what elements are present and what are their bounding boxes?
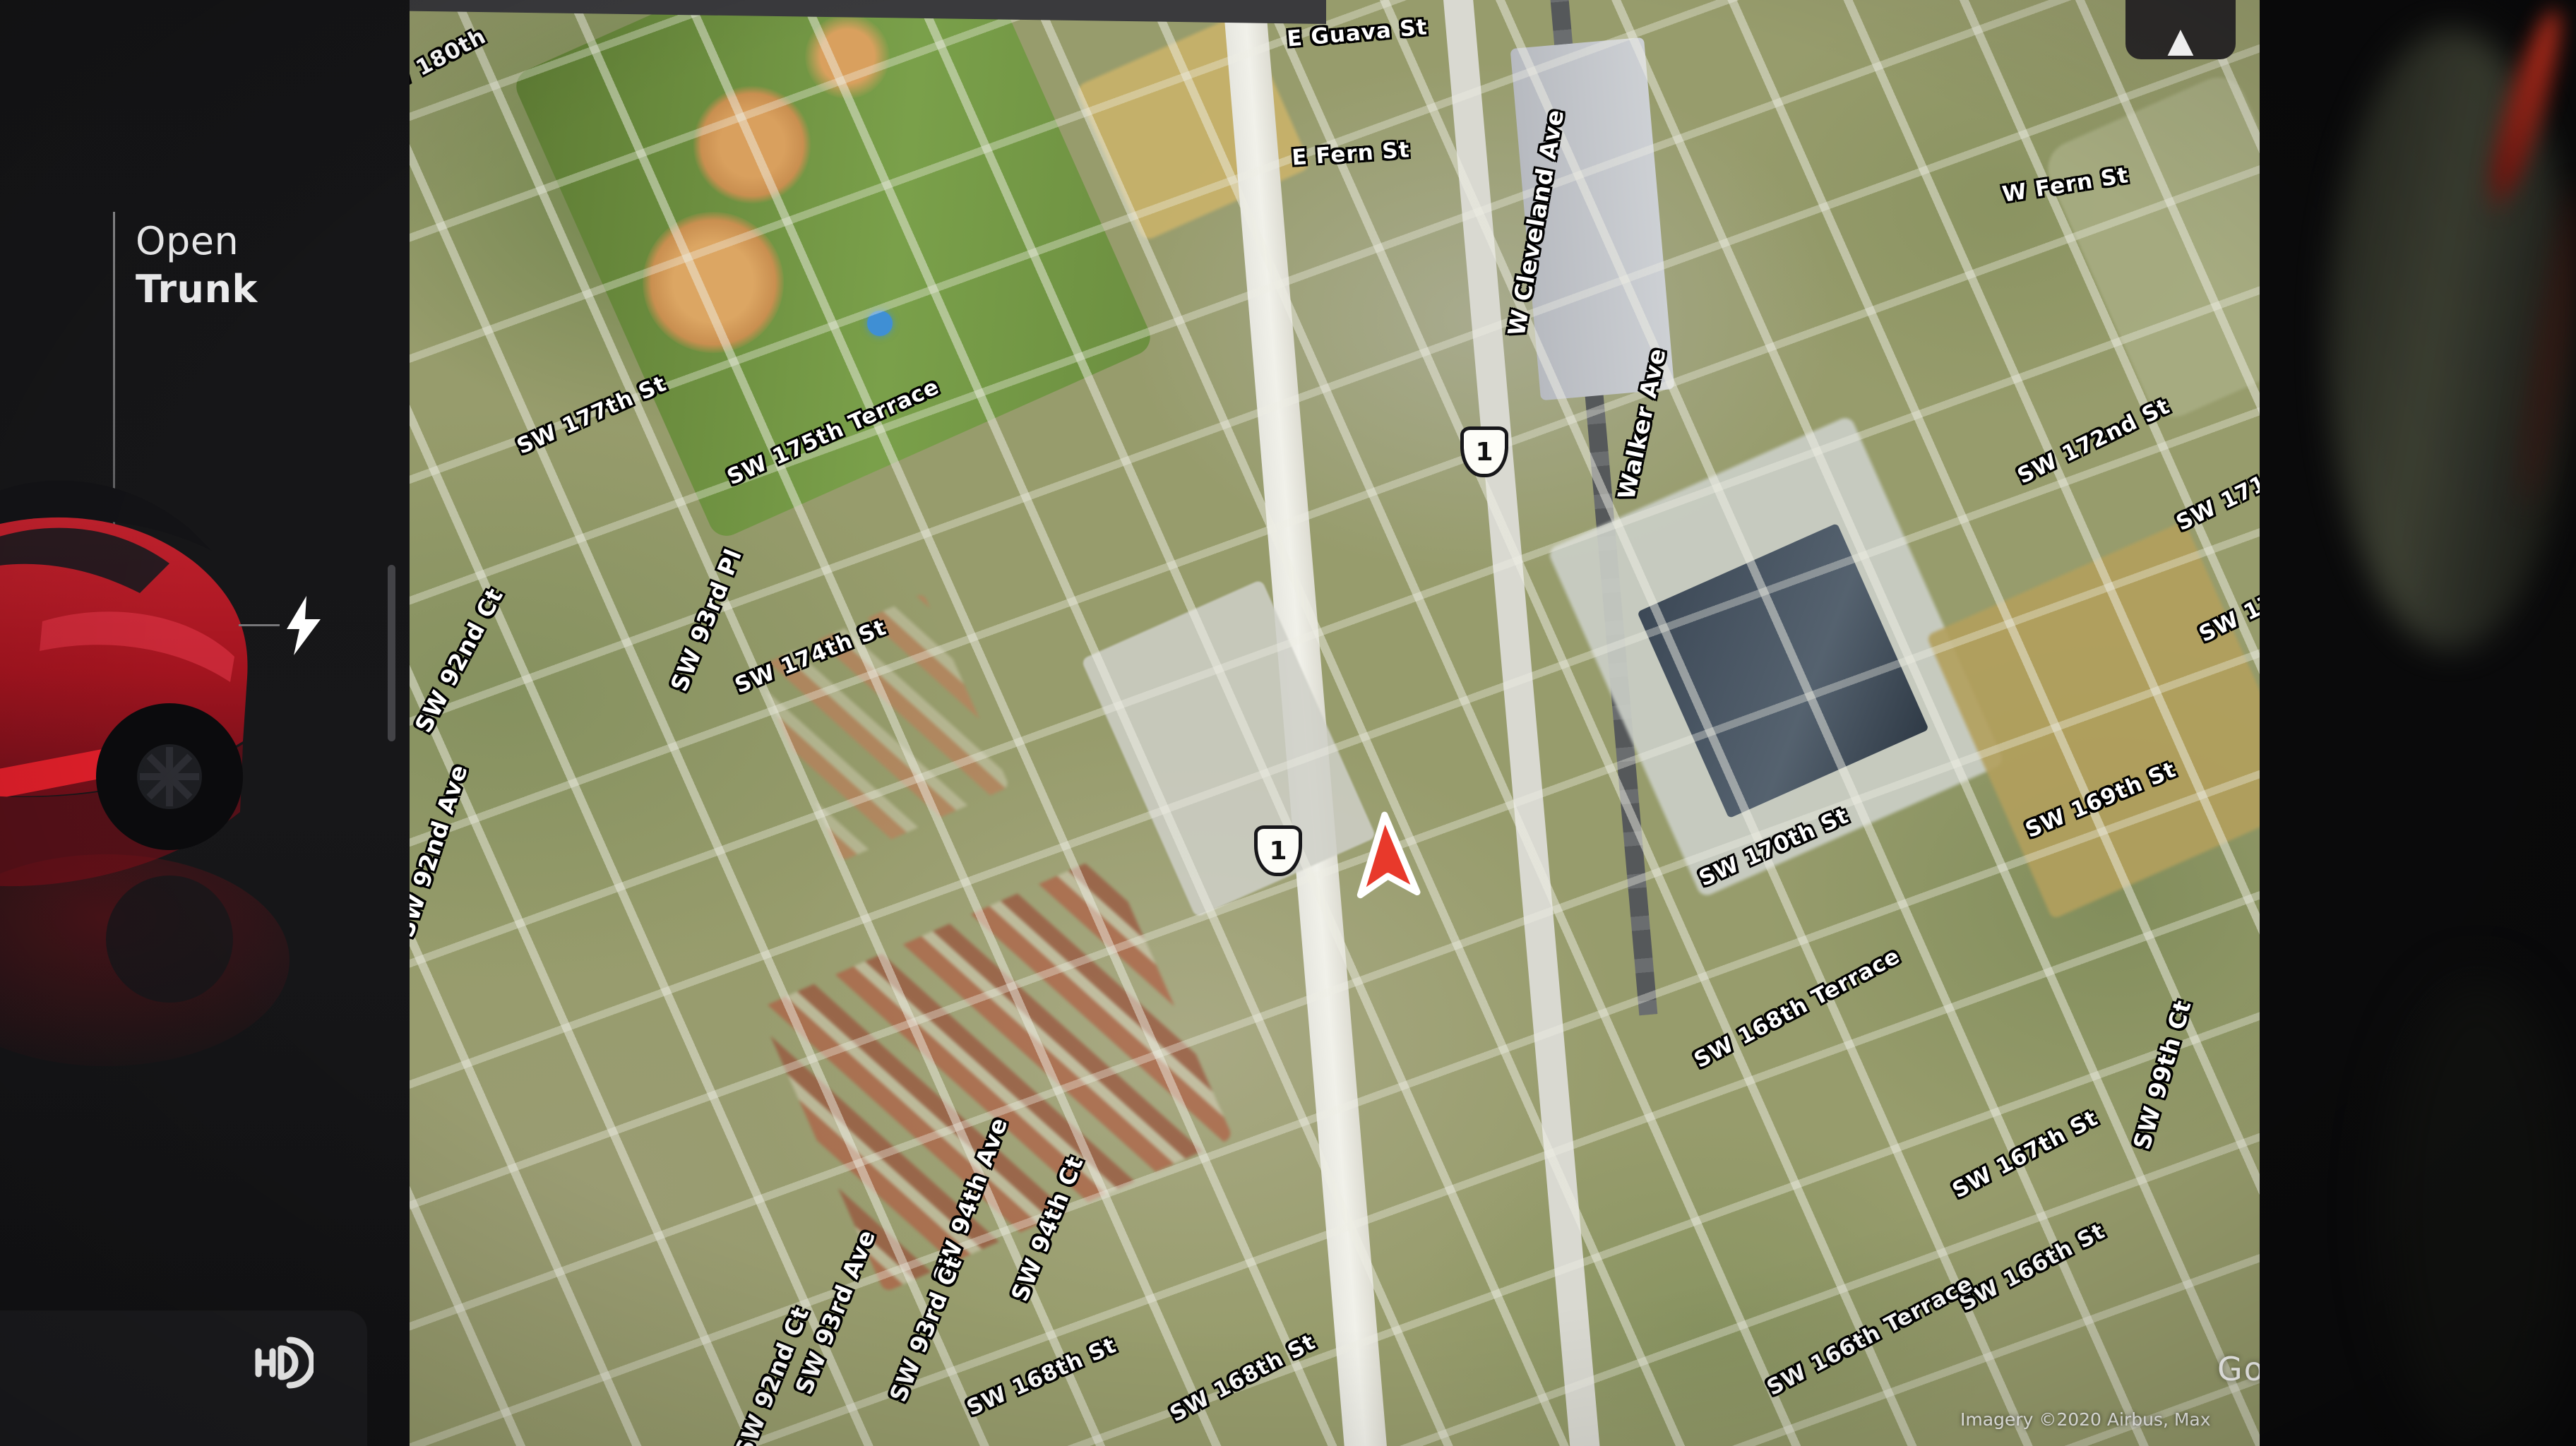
street-label: W Fern St [2000,162,2130,208]
open-trunk-label-trunk: Trunk [136,265,258,313]
street-label: SW 170th [2195,570,2260,647]
street-label: SW 92nd Ave [410,760,473,940]
street-label: W Cleveland Ave [1503,107,1570,338]
street-label: SW 175th Terrace [723,374,943,491]
street-label: W 180th [410,23,490,97]
street-label: SW 166th St [1955,1219,2109,1317]
vehicle-controls-sidebar: Open Trunk [0,0,410,1446]
satellite-map[interactable]: W 180thE Guava StE Fern StW Fern StSW 17… [410,0,2260,1446]
screen-bezel-right [2260,0,2576,1446]
north-arrow-icon: ▲ [2168,21,2194,59]
street-label: SW 94th Ct [1006,1152,1089,1305]
bezel-shadow [2380,974,2576,1446]
vehicle-location-arrow [1352,809,1423,907]
street-label: SW 168th St [1166,1330,1320,1428]
vehicle-rendering [0,445,290,1080]
street-label: Walker Ave [1612,345,1671,502]
charge-port-callout-line [239,624,280,626]
street-label: SW 168th St [963,1332,1121,1421]
street-label: SW 92nd Ct [410,583,508,737]
charge-bolt-icon [284,596,323,658]
sidebar-scrollbar[interactable] [388,565,395,741]
street-label: SW 172nd St [2013,393,2173,489]
tesla-center-display: W 180thE Guava StE Fern StW Fern StSW 17… [0,0,2576,1446]
google-watermark: Google [2217,1350,2260,1388]
street-label: SW 170th St [1695,803,1853,892]
street-label: SW 171st [2172,460,2260,536]
street-label: SW 99th Ct [2128,997,2197,1153]
street-label: SW 174th St [732,615,890,699]
street-label: E Guava St [1286,14,1429,52]
open-trunk-label-open: Open [136,217,258,265]
street-label: SW 169th St [2022,757,2180,843]
us-route-1-shield: 1 [1460,426,1508,477]
imagery-attribution: Imagery ©2020 Airbus, Max [1960,1409,2211,1430]
compass-north-button[interactable]: ▲ [2125,0,2236,59]
street-label: SW 177th St [513,371,671,460]
street-label: SW 93rd Ct [884,1252,967,1406]
street-label: E Fern St [1291,137,1410,171]
us-route-1-shield: 1 [1254,825,1302,876]
open-trunk-button[interactable]: Open Trunk [136,217,258,313]
street-label: SW 167th St [1948,1106,2102,1204]
street-label: SW 168th Terrace [1690,943,1904,1073]
hd-radio-icon [249,1330,314,1398]
street-labels-layer: W 180thE Guava StE Fern StW Fern StSW 17… [410,0,2260,1446]
street-label: SW 166th Terrace [1763,1271,1977,1401]
